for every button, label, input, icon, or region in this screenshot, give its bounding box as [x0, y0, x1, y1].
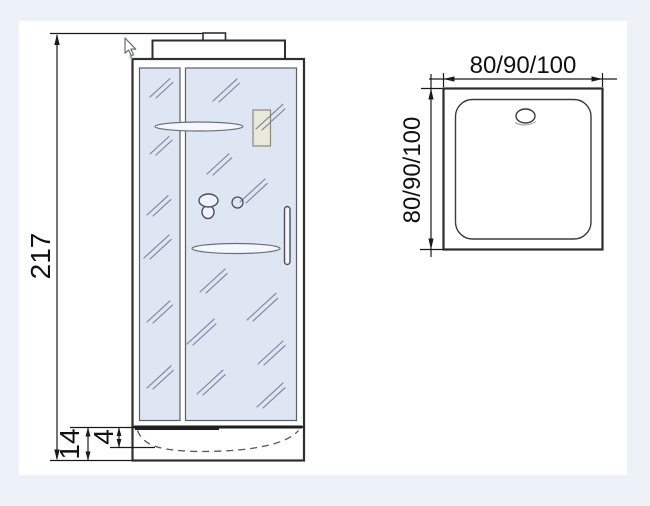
wall-panel-mirror: [253, 110, 271, 146]
shelf-upper: [155, 122, 243, 131]
door-handle: [285, 207, 291, 265]
screenshot-root: 217 14 4 80/90/100 80/90/100: [0, 0, 650, 506]
top-view-width-label: 80/90/100: [470, 54, 577, 78]
top-view-depth-label: 80/90/100: [401, 117, 425, 224]
tray-depth-dimension-label: 4: [90, 429, 118, 445]
shower-tray: [133, 427, 305, 461]
arrowhead-down-icon: [428, 239, 433, 250]
tray-height-dimension-label: 14: [56, 428, 84, 459]
mouse-pointer-icon: [125, 38, 136, 59]
roof-vent-cap: [203, 33, 226, 41]
roof-section: [153, 41, 286, 60]
mixer-knob-upper: [199, 194, 218, 207]
drain-cover: [516, 109, 535, 123]
arrowhead-up-icon: [428, 89, 433, 100]
arrowhead-right-icon: [592, 76, 603, 81]
arrowhead-left-icon: [444, 76, 455, 81]
top-view: [420, 73, 617, 257]
front-view: [50, 33, 304, 461]
arrowhead-down-icon: [86, 452, 91, 461]
height-dimension-label: 217: [27, 233, 55, 280]
arrowhead-up-icon: [54, 34, 59, 45]
shelf-lower: [192, 244, 280, 254]
